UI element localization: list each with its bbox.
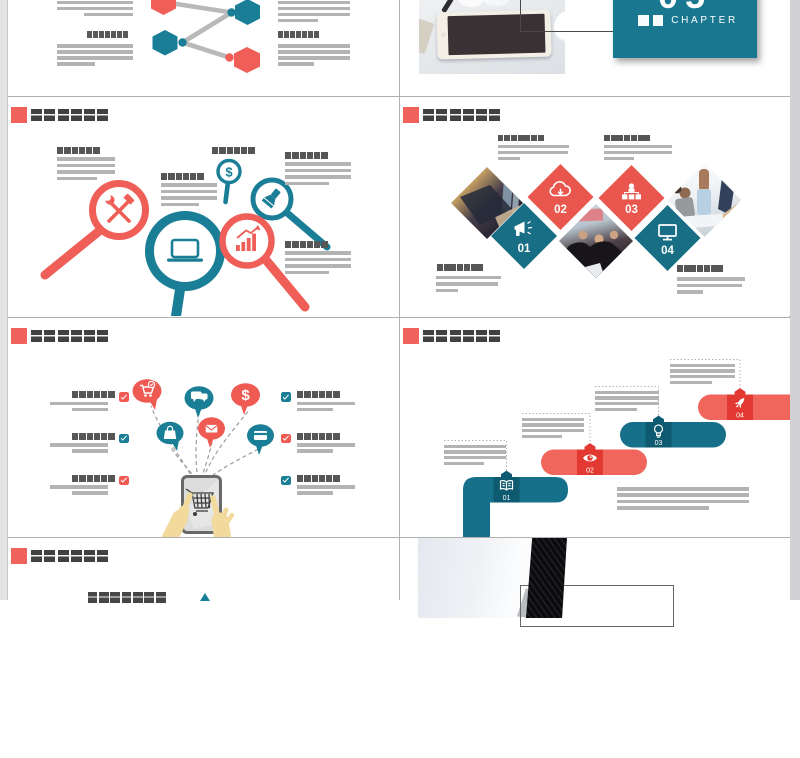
svg-text:01: 01 [503,495,511,502]
svg-text:04: 04 [736,413,744,420]
svg-text:02: 02 [586,468,594,475]
svg-text:02: 02 [554,204,567,216]
svg-text:03: 03 [655,440,663,447]
svg-text:$: $ [225,165,233,180]
svg-text:03: 03 [625,204,638,216]
svg-text:$: $ [241,387,250,404]
svg-text:04: 04 [661,245,674,257]
svg-text:01: 01 [518,243,531,255]
